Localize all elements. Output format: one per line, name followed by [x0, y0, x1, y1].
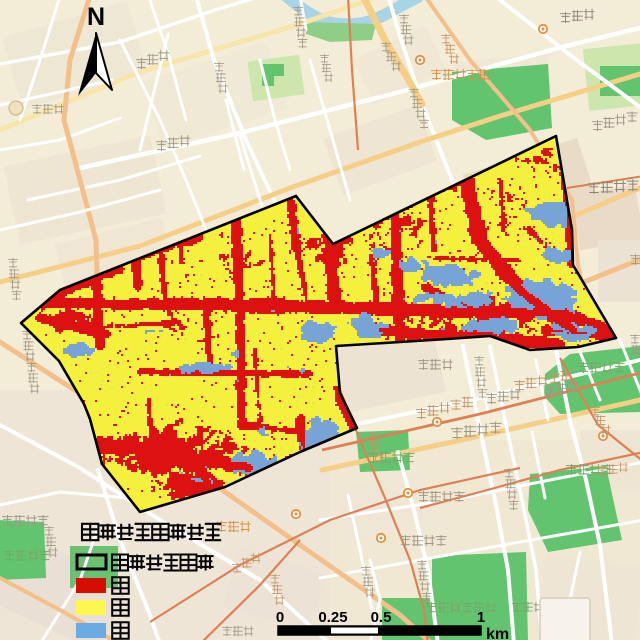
- svg-text:0.5: 0.5: [371, 609, 392, 626]
- svg-text:1: 1: [477, 609, 485, 626]
- svg-text:0.25: 0.25: [318, 609, 347, 626]
- svg-text:km: km: [486, 626, 509, 640]
- svg-text:N: N: [87, 3, 105, 31]
- svg-text:0: 0: [276, 609, 284, 626]
